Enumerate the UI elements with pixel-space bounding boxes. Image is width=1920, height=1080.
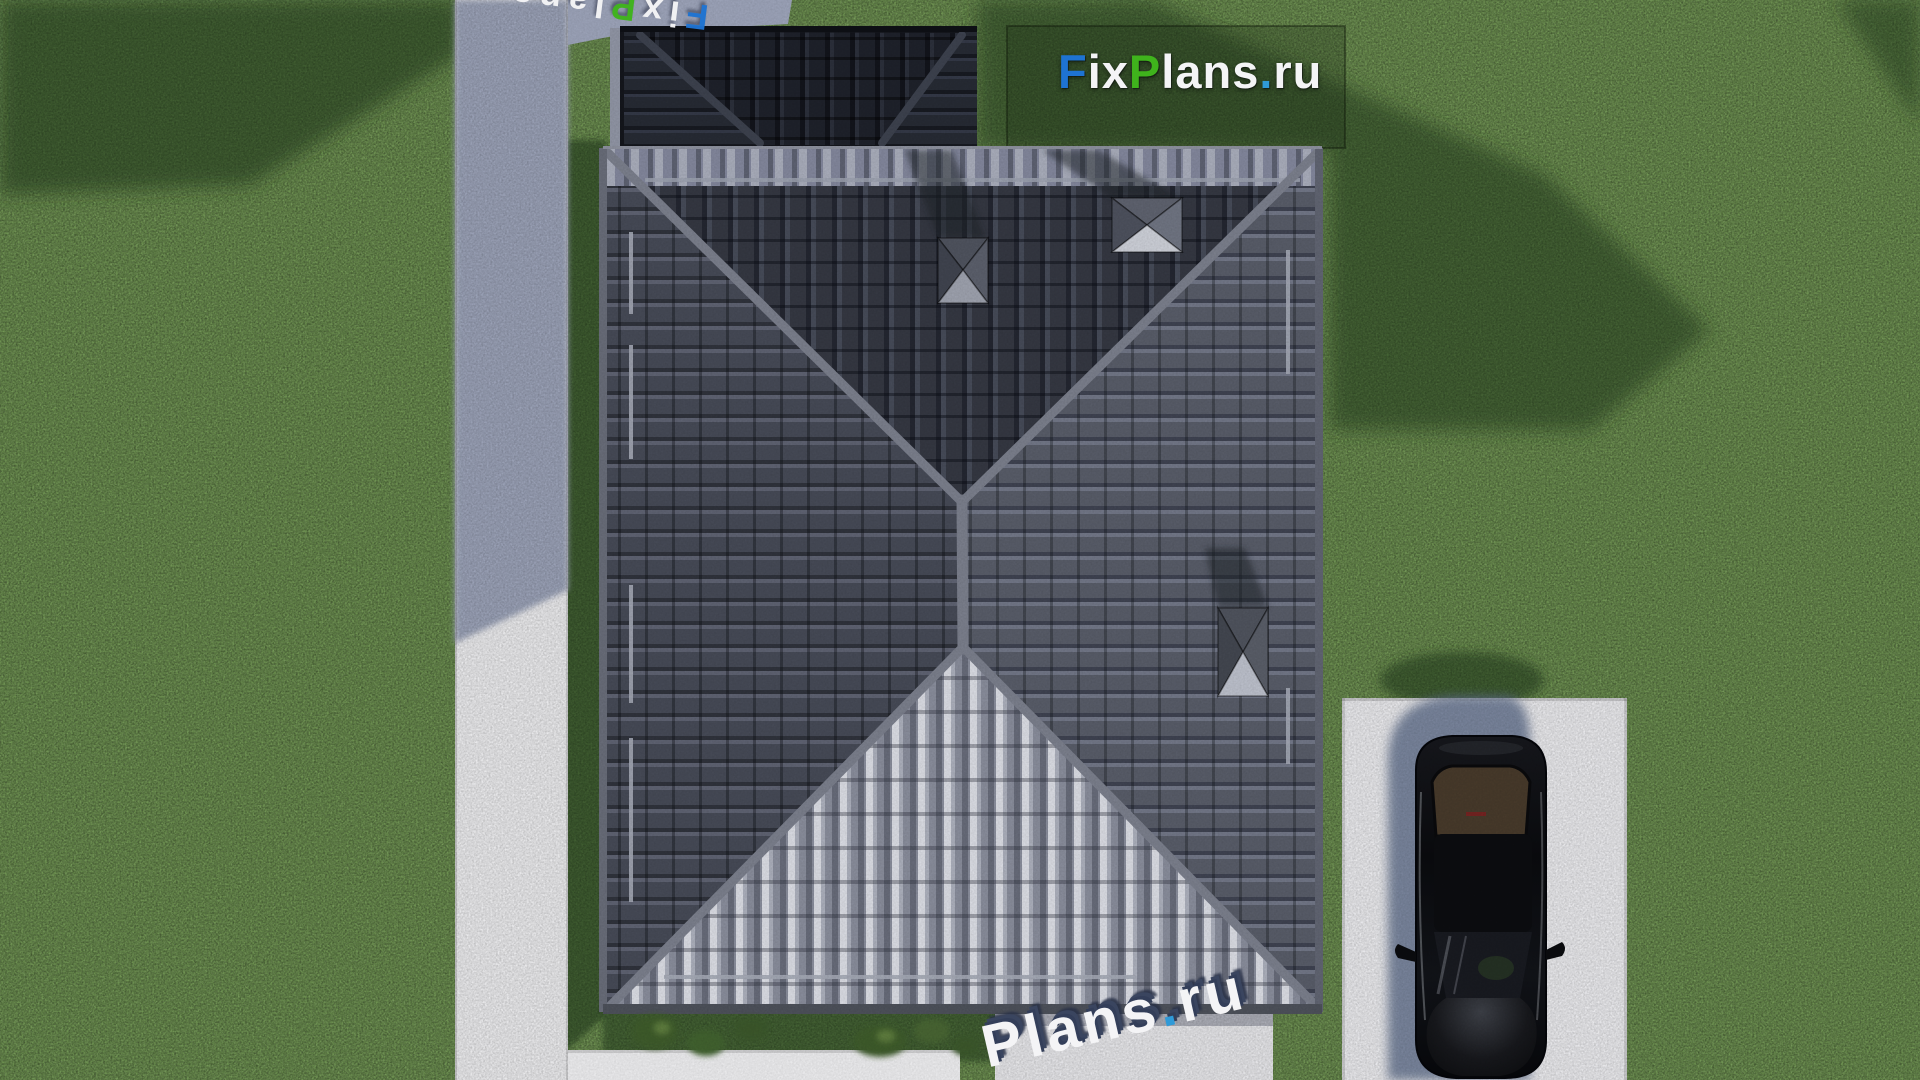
logo-letter-p: P bbox=[1129, 45, 1161, 98]
logo-letters-ix: ix bbox=[1088, 45, 1129, 98]
logo-letters-ru: ru bbox=[1273, 45, 1322, 98]
scene-canvas bbox=[0, 0, 1920, 1080]
site-logo: FixPlans.ru bbox=[1058, 44, 1322, 99]
watermark-top-letter-p: P bbox=[602, 0, 638, 29]
logo-dot: . bbox=[1259, 45, 1273, 98]
film-grain bbox=[0, 0, 1920, 1080]
watermark-top-letters-ix: ix bbox=[633, 0, 682, 35]
watermark-bottom-letters-ru: ru bbox=[1171, 955, 1252, 1036]
logo-letter-f: F bbox=[1058, 45, 1088, 98]
aerial-render: FixPlans.ru FixPlans.ru Plans.ru bbox=[0, 0, 1920, 1080]
logo-letters-lans: lans bbox=[1161, 45, 1259, 98]
watermark-top-letter-f: F bbox=[677, 0, 711, 38]
